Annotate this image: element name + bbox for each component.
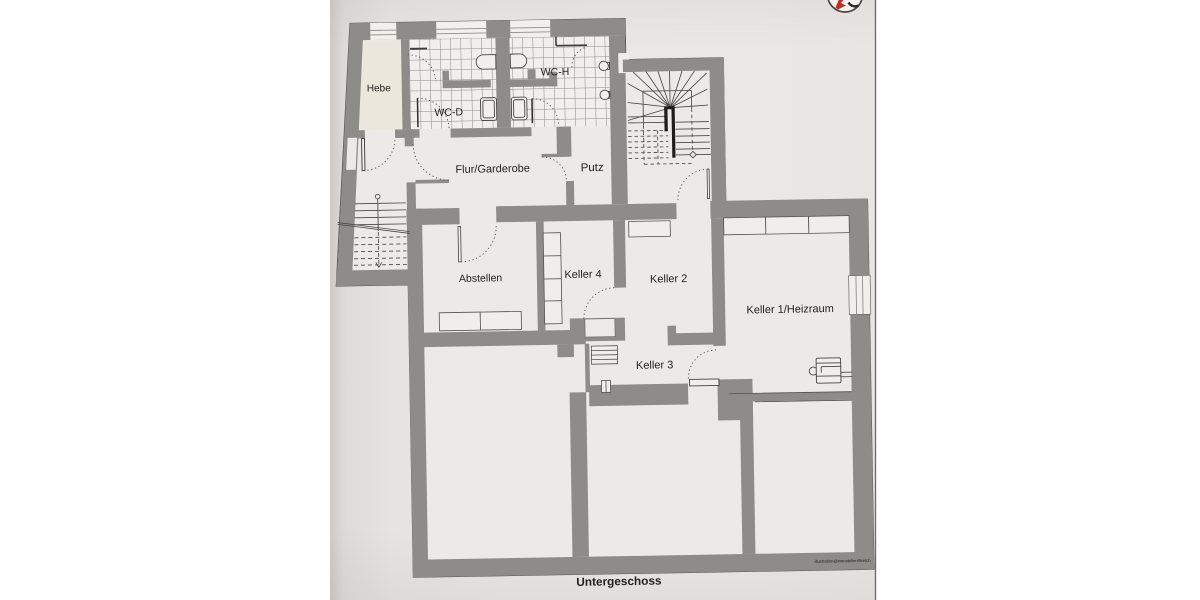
- svg-text:Flur/Garderobe: Flur/Garderobe: [455, 163, 530, 176]
- svg-text:Keller 3: Keller 3: [636, 359, 674, 372]
- svg-text:Keller 2: Keller 2: [650, 273, 688, 286]
- svg-text:Hebe: Hebe: [367, 83, 392, 94]
- svg-text:Abstellen: Abstellen: [459, 272, 503, 285]
- svg-text:Keller 1/Heizraum: Keller 1/Heizraum: [746, 303, 834, 317]
- svg-text:Putz: Putz: [581, 162, 604, 174]
- svg-text:Untergeschoss: Untergeschoss: [576, 573, 662, 588]
- svg-text:Keller 4: Keller 4: [564, 268, 602, 281]
- svg-text:illustration@immobilienSketch: illustration@immobilienSketch: [815, 558, 872, 564]
- svg-text:WC-D: WC-D: [434, 106, 463, 119]
- svg-text:WC-H: WC-H: [541, 66, 570, 78]
